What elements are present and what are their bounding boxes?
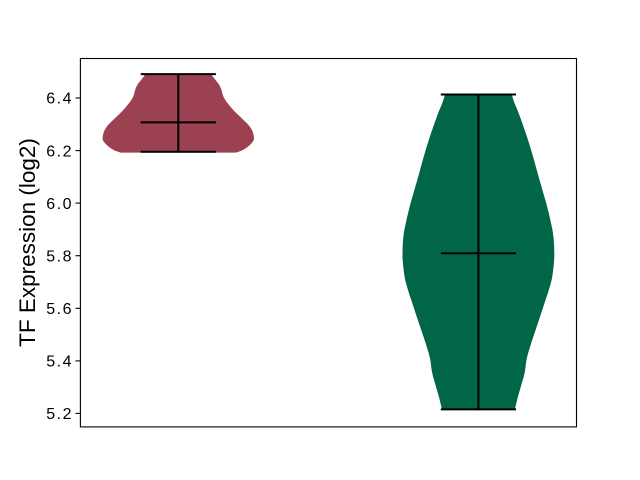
svg-text:5.8: 5.8: [46, 248, 73, 265]
svg-text:TF Expression (log2): TF Expression (log2): [15, 138, 40, 347]
svg-text:5.4: 5.4: [46, 354, 73, 371]
svg-text:5.6: 5.6: [46, 301, 73, 318]
svg-text:5.2: 5.2: [46, 406, 73, 423]
svg-text:6.4: 6.4: [46, 91, 73, 108]
svg-text:6.2: 6.2: [46, 143, 73, 160]
svg-text:6.0: 6.0: [46, 196, 73, 213]
